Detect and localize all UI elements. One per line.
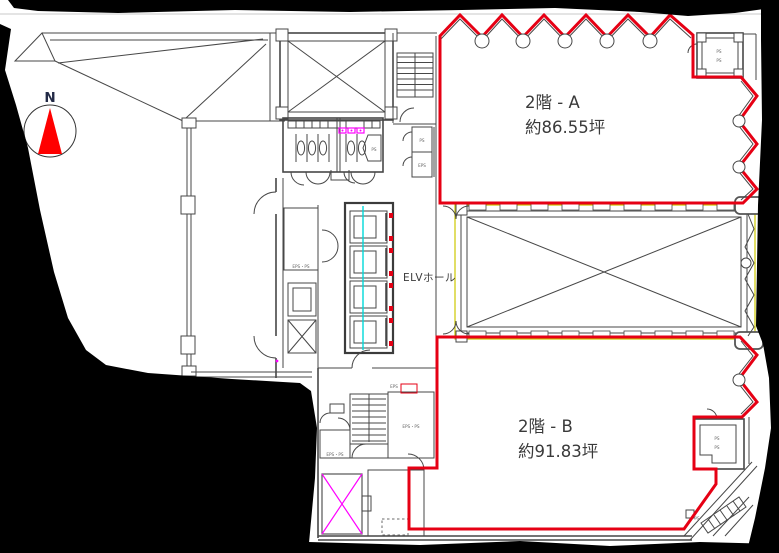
area-b-name: 2階 - B [518,417,573,436]
north-shaft [276,29,397,120]
area-a-size: 約86.55坪 [525,118,605,137]
torn-edge-right [747,0,779,553]
compass-north-label: N [44,90,55,106]
central-void [455,197,763,349]
eps-label: EPS [418,163,426,168]
ps-label: PS [714,445,720,450]
eps-ps-label: EPS・PS [402,424,420,429]
southeast-corner-escalator [684,462,757,540]
floorplan-page: N 2階 - A 約86.55坪 2階 - B 約91.83坪 ELVホール P… [0,0,779,553]
compass-needle [38,108,62,154]
ps-label: PS [419,138,425,143]
north-ps-rooms [403,127,434,177]
restrooms [283,118,383,185]
ps-label: PS [694,516,700,521]
elevator-car [350,246,387,278]
area-a-name: 2階 - A [525,93,580,112]
floorplan-drawing: N 2階 - A 約86.55坪 2階 - B 約91.83坪 ELVホール P… [0,0,779,553]
restroom-fixtures-magenta [339,128,364,133]
eps-label: EPS [390,384,398,389]
topleft-roof-band [15,33,437,121]
lease-boundary-area-b [409,337,757,529]
eps-ps-label: EPS・PS [292,264,310,269]
east-facade-zigzag [745,214,754,336]
ps-label: PS [714,436,720,441]
ps-label: PS [716,49,722,54]
northeast-ps-room [688,33,756,80]
elevator-car [350,211,387,243]
elevator-car [350,316,387,348]
ps-label: PS [371,147,377,152]
north-compass: N [24,90,76,157]
elevator-bank [345,203,393,353]
elevator-car [350,281,387,313]
hall-doors [436,203,469,337]
area-labels: 2階 - A 約86.55坪 2階 - B 約91.83坪 ELVホール [403,93,605,461]
elv-hall-label: ELVホール [403,272,456,284]
core-strip [283,178,338,368]
area-b-size: 約91.83坪 [518,442,598,461]
eps-ps-label: EPS・PS [326,452,344,457]
ps-label: PS [716,58,722,63]
shaft-x-box-magenta [322,474,371,534]
west-room [181,118,312,378]
south-core [318,350,692,540]
